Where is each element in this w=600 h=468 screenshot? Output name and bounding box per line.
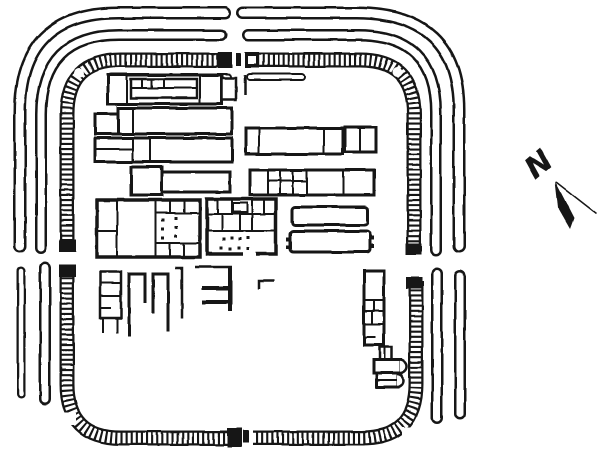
rampart-south-west: [67, 264, 228, 438]
long-building-lower-buttress: [286, 237, 291, 241]
gate-block: [227, 428, 242, 447]
courtyard-building-west-post: [175, 226, 178, 229]
courtyard-building-east-post: [239, 238, 242, 241]
courtyard-building-west: [97, 200, 200, 257]
gate-block: [406, 243, 422, 255]
courtyard-building-west-post: [162, 219, 165, 222]
long-building-upper-wall: [292, 207, 368, 225]
courtyard-building-east-post: [247, 237, 250, 240]
wall-fragment: [175, 268, 182, 319]
building-row4-west: [131, 167, 230, 195]
building-row4-west-wall: [162, 172, 230, 192]
barrack-block-1: [108, 75, 236, 104]
gate-causeway-bar: [243, 430, 249, 443]
courtyard-building-west-post: [175, 235, 178, 238]
apsidal-building: [374, 347, 407, 387]
building-row2-west: [95, 108, 232, 134]
courtyard-building-east-post: [229, 248, 232, 251]
apsidal-building-apse: [397, 374, 404, 387]
north-label: N: [518, 143, 560, 186]
building-row2-west-wall: [95, 114, 118, 134]
fragment-building-a: [100, 272, 121, 333]
rampart-south-west-hachure: [67, 264, 228, 438]
building-layer: [95, 75, 407, 387]
wall-fragment: [129, 274, 145, 336]
apsidal-building-wall: [374, 360, 401, 373]
gate-block: [218, 52, 232, 68]
courtyard-building-east-post: [223, 238, 226, 241]
wall-fragment: [153, 274, 168, 331]
building-row3-east: [250, 170, 374, 195]
courtyard-building-west-post: [162, 228, 165, 231]
building-row2-east-wall: [246, 128, 343, 154]
gate-block-notch: [248, 56, 256, 64]
corner-tower: [392, 67, 402, 77]
building-row4-west-wall: [131, 167, 162, 195]
apsidal-building-apse: [400, 360, 407, 373]
gate-block: [406, 277, 422, 289]
courtyard-building-east: [207, 199, 276, 256]
gate-causeway-bar: [236, 53, 241, 66]
courtyard-building-east-post: [220, 247, 223, 250]
long-building-lower-wall: [290, 231, 370, 252]
gate-block: [59, 264, 76, 277]
site-plan-svg: N: [0, 0, 600, 468]
long-building-lower-buttress: [286, 245, 291, 249]
long-building-upper: [292, 207, 368, 225]
strip-building-east: [364, 271, 384, 345]
building-row2-east: [246, 127, 376, 154]
wall-fragment: [259, 281, 274, 289]
long-building-lower: [286, 231, 374, 252]
courtyard-building-east-post: [231, 237, 234, 240]
corner-tower: [402, 427, 412, 437]
courtyard-building-west-post: [175, 217, 178, 220]
courtyard-building-east-wall: [233, 203, 247, 212]
corner-tower: [63, 413, 76, 425]
building-row2-west-wall: [118, 108, 232, 134]
long-building-lower-buttress: [369, 236, 374, 240]
courtyard-building-east-post: [238, 247, 241, 250]
building-row3-west: [95, 138, 232, 162]
barrack-block-1-wall: [222, 78, 236, 100]
corner-tower: [74, 68, 84, 78]
gate-block: [59, 239, 76, 252]
north-arrow: N: [518, 143, 597, 229]
courtyard-building-east-doorway: [243, 251, 256, 256]
courtyard-building-west-post: [162, 237, 165, 240]
long-building-lower-buttress: [369, 244, 374, 248]
archaeological-site-plan-figure: N: [0, 0, 600, 468]
courtyard-building-east-post: [247, 248, 250, 251]
